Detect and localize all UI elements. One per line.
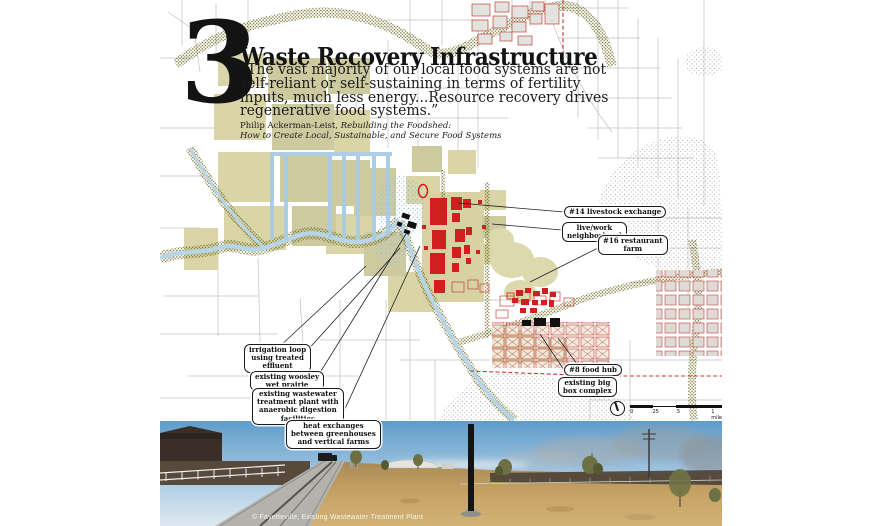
scale-tick-quarter: .25 — [651, 409, 659, 415]
callout-irrigation-loop: irrigation loop using treated effluent — [244, 344, 311, 373]
site-photo-graphic — [160, 421, 722, 526]
photo-caption: © Fayetteville, Existing Wastewater Trea… — [252, 514, 423, 521]
city-blocks-top — [472, 2, 559, 45]
callout-food-hub: #8 food hub — [564, 364, 622, 376]
scale-bar-ruler: 0 .25 .5 1 mile — [630, 401, 722, 415]
callout-livestock-exchange: #14 livestock exchange — [564, 206, 666, 218]
attribution-author: Philip Ackerman-Leist, — [240, 121, 341, 131]
scale-tick-mile: 1 mile — [711, 409, 722, 421]
north-arrow-icon — [610, 401, 625, 416]
quote-text: “The vast majority of our local food sys… — [240, 63, 608, 118]
quote-attribution: Philip Ackerman-Leist, Rebuilding the Fo… — [240, 122, 502, 141]
scale-tick-half: .5 — [675, 409, 680, 415]
scale-tick-0: 0 — [630, 409, 633, 415]
callout-heat-exchanges: heat exchanges between greenhouses and v… — [286, 420, 381, 449]
city-blocks-right — [656, 270, 722, 356]
poster-content: 3 Waste Recovery Infrastructure “The vas… — [160, 0, 722, 526]
site-photo: © Fayetteville, Existing Wastewater Trea… — [160, 421, 722, 526]
scale-bar: 0 .25 .5 1 mile — [610, 398, 722, 418]
poster-canvas: 3 Waste Recovery Infrastructure “The vas… — [0, 0, 882, 526]
callout-big-box-complex: existing big box complex — [558, 377, 617, 397]
callout-restaurant-farm: #16 restaurant farm — [598, 235, 668, 255]
food-hub-grid — [492, 322, 610, 368]
